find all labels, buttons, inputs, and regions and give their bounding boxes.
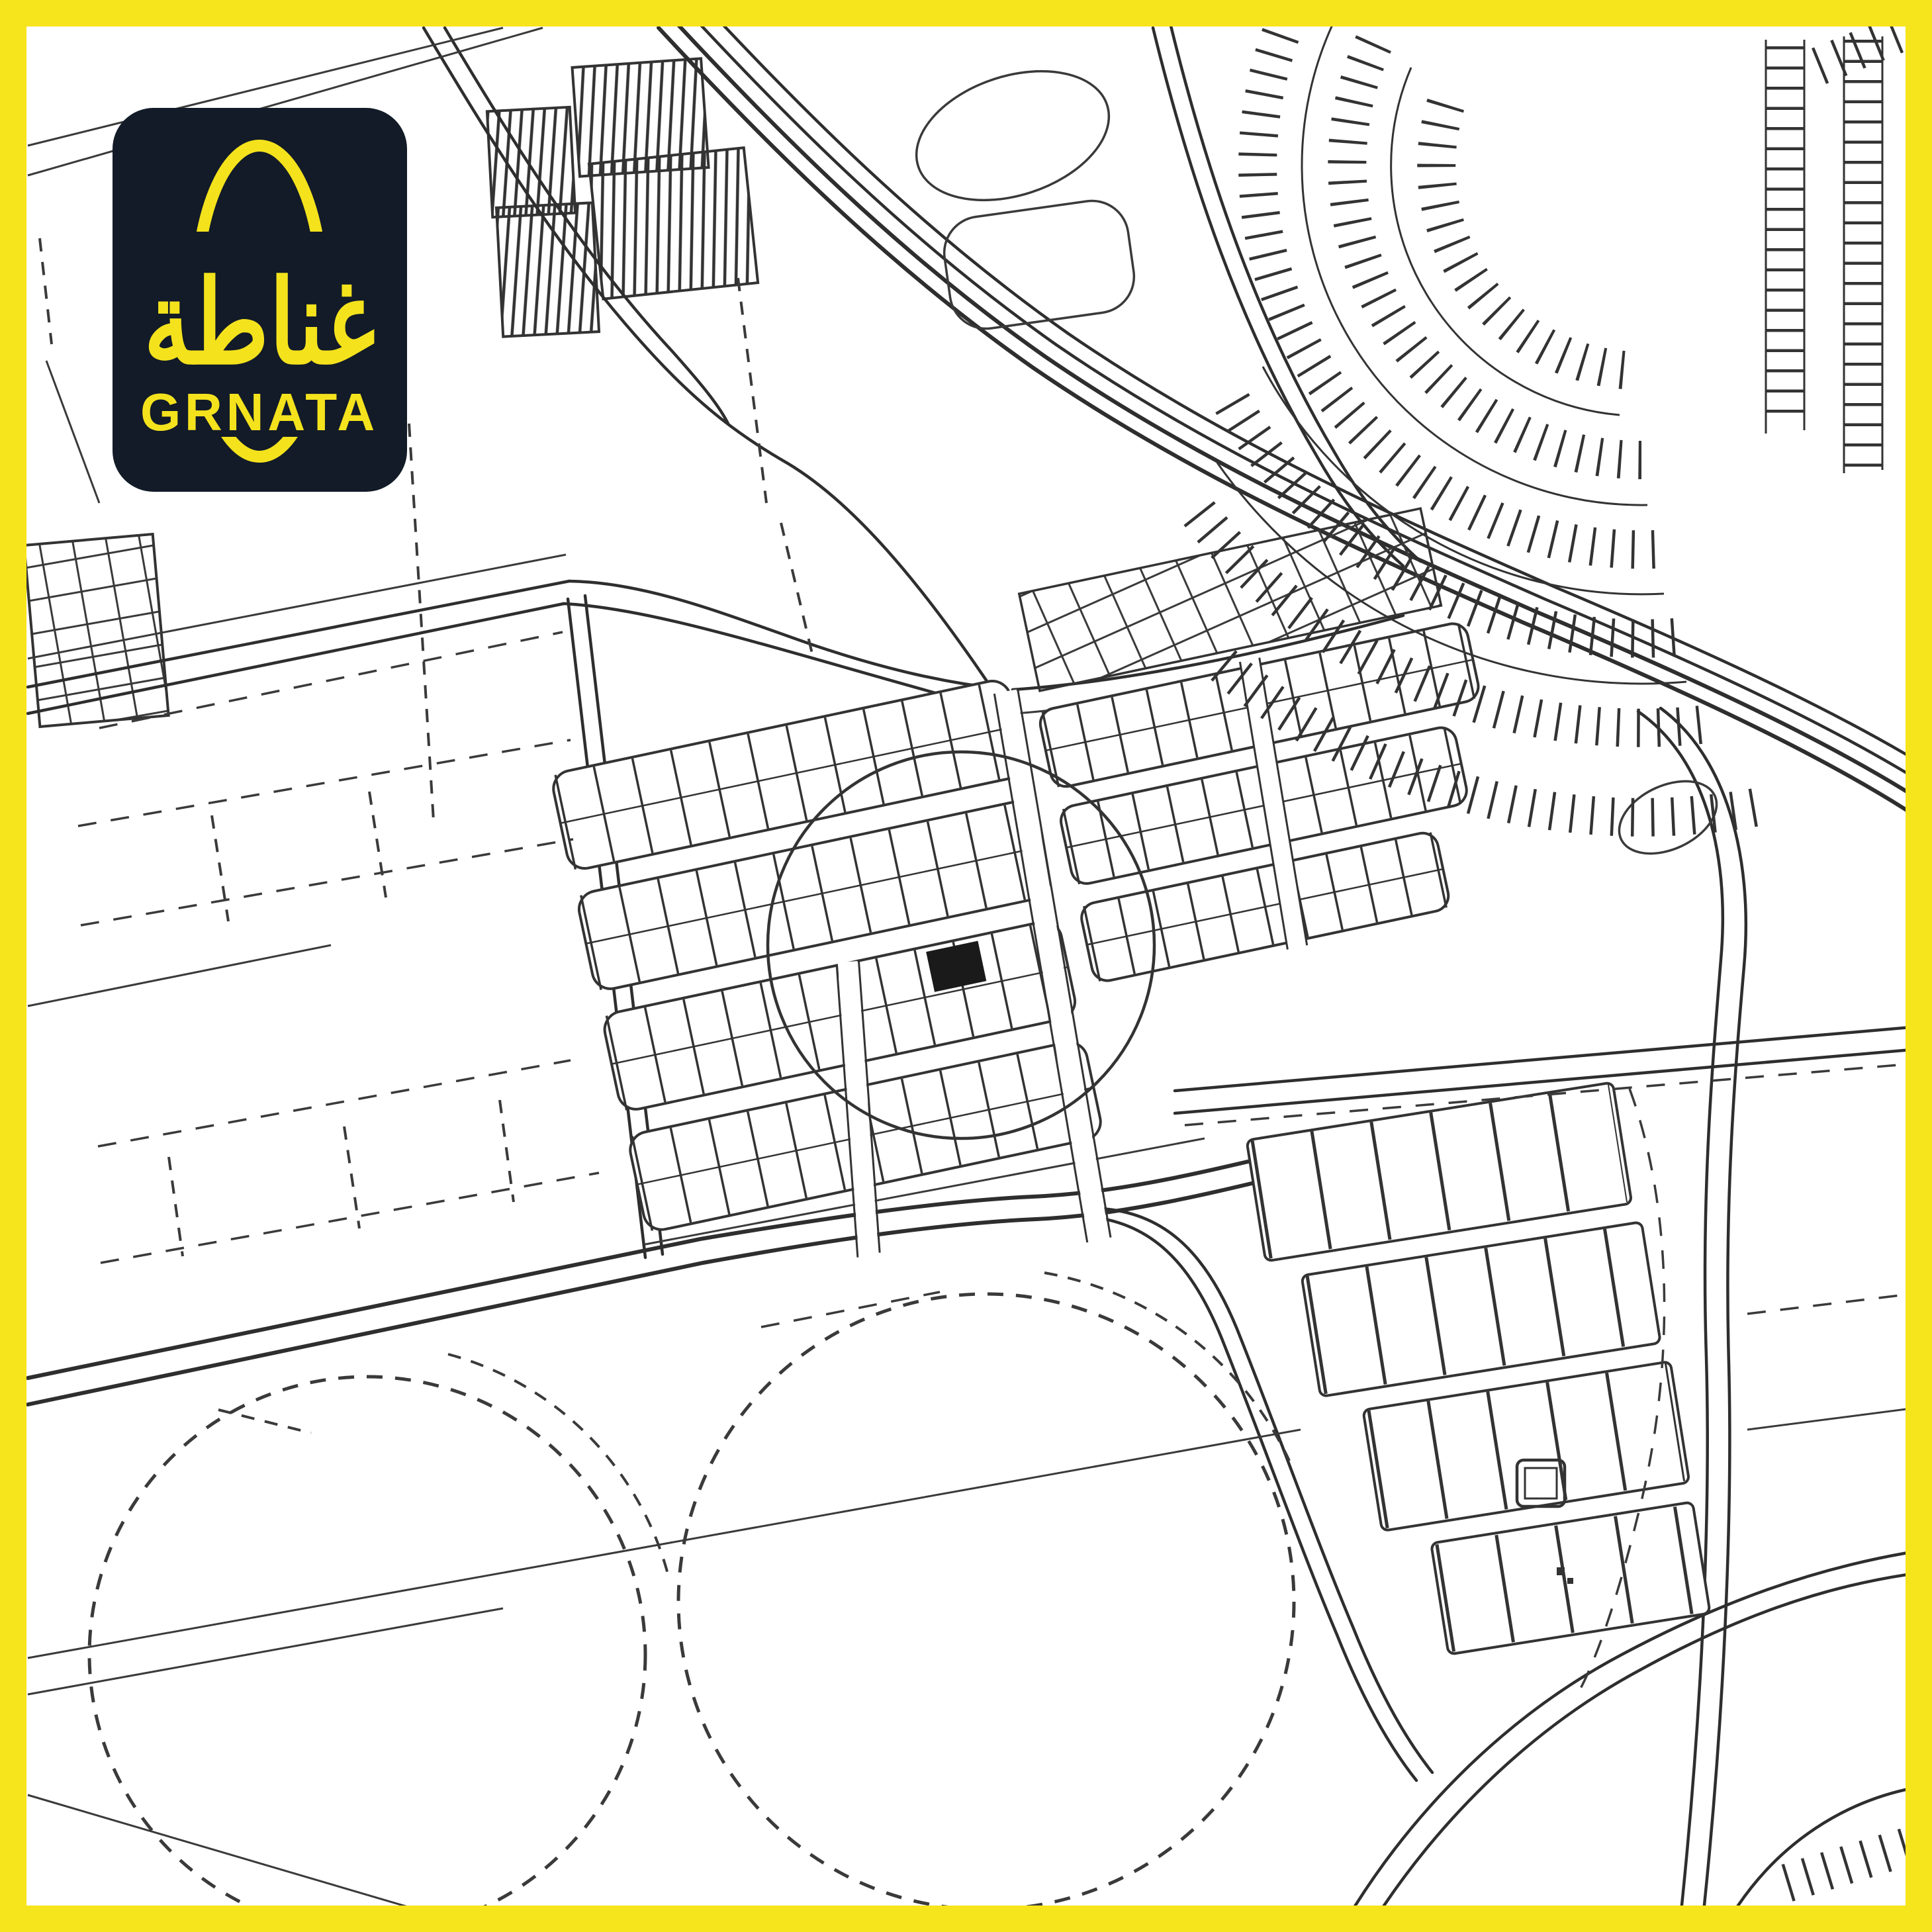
cadastral-map: غناطة GRNATA [0, 0, 1932, 1932]
logo-latin-wordmark: GRNATA [140, 383, 379, 441]
logo-arabic-wordmark: غناطة [144, 259, 375, 388]
map-poster: غناطة GRNATA [0, 0, 1932, 1932]
brand-logo: غناطة GRNATA [113, 108, 407, 492]
